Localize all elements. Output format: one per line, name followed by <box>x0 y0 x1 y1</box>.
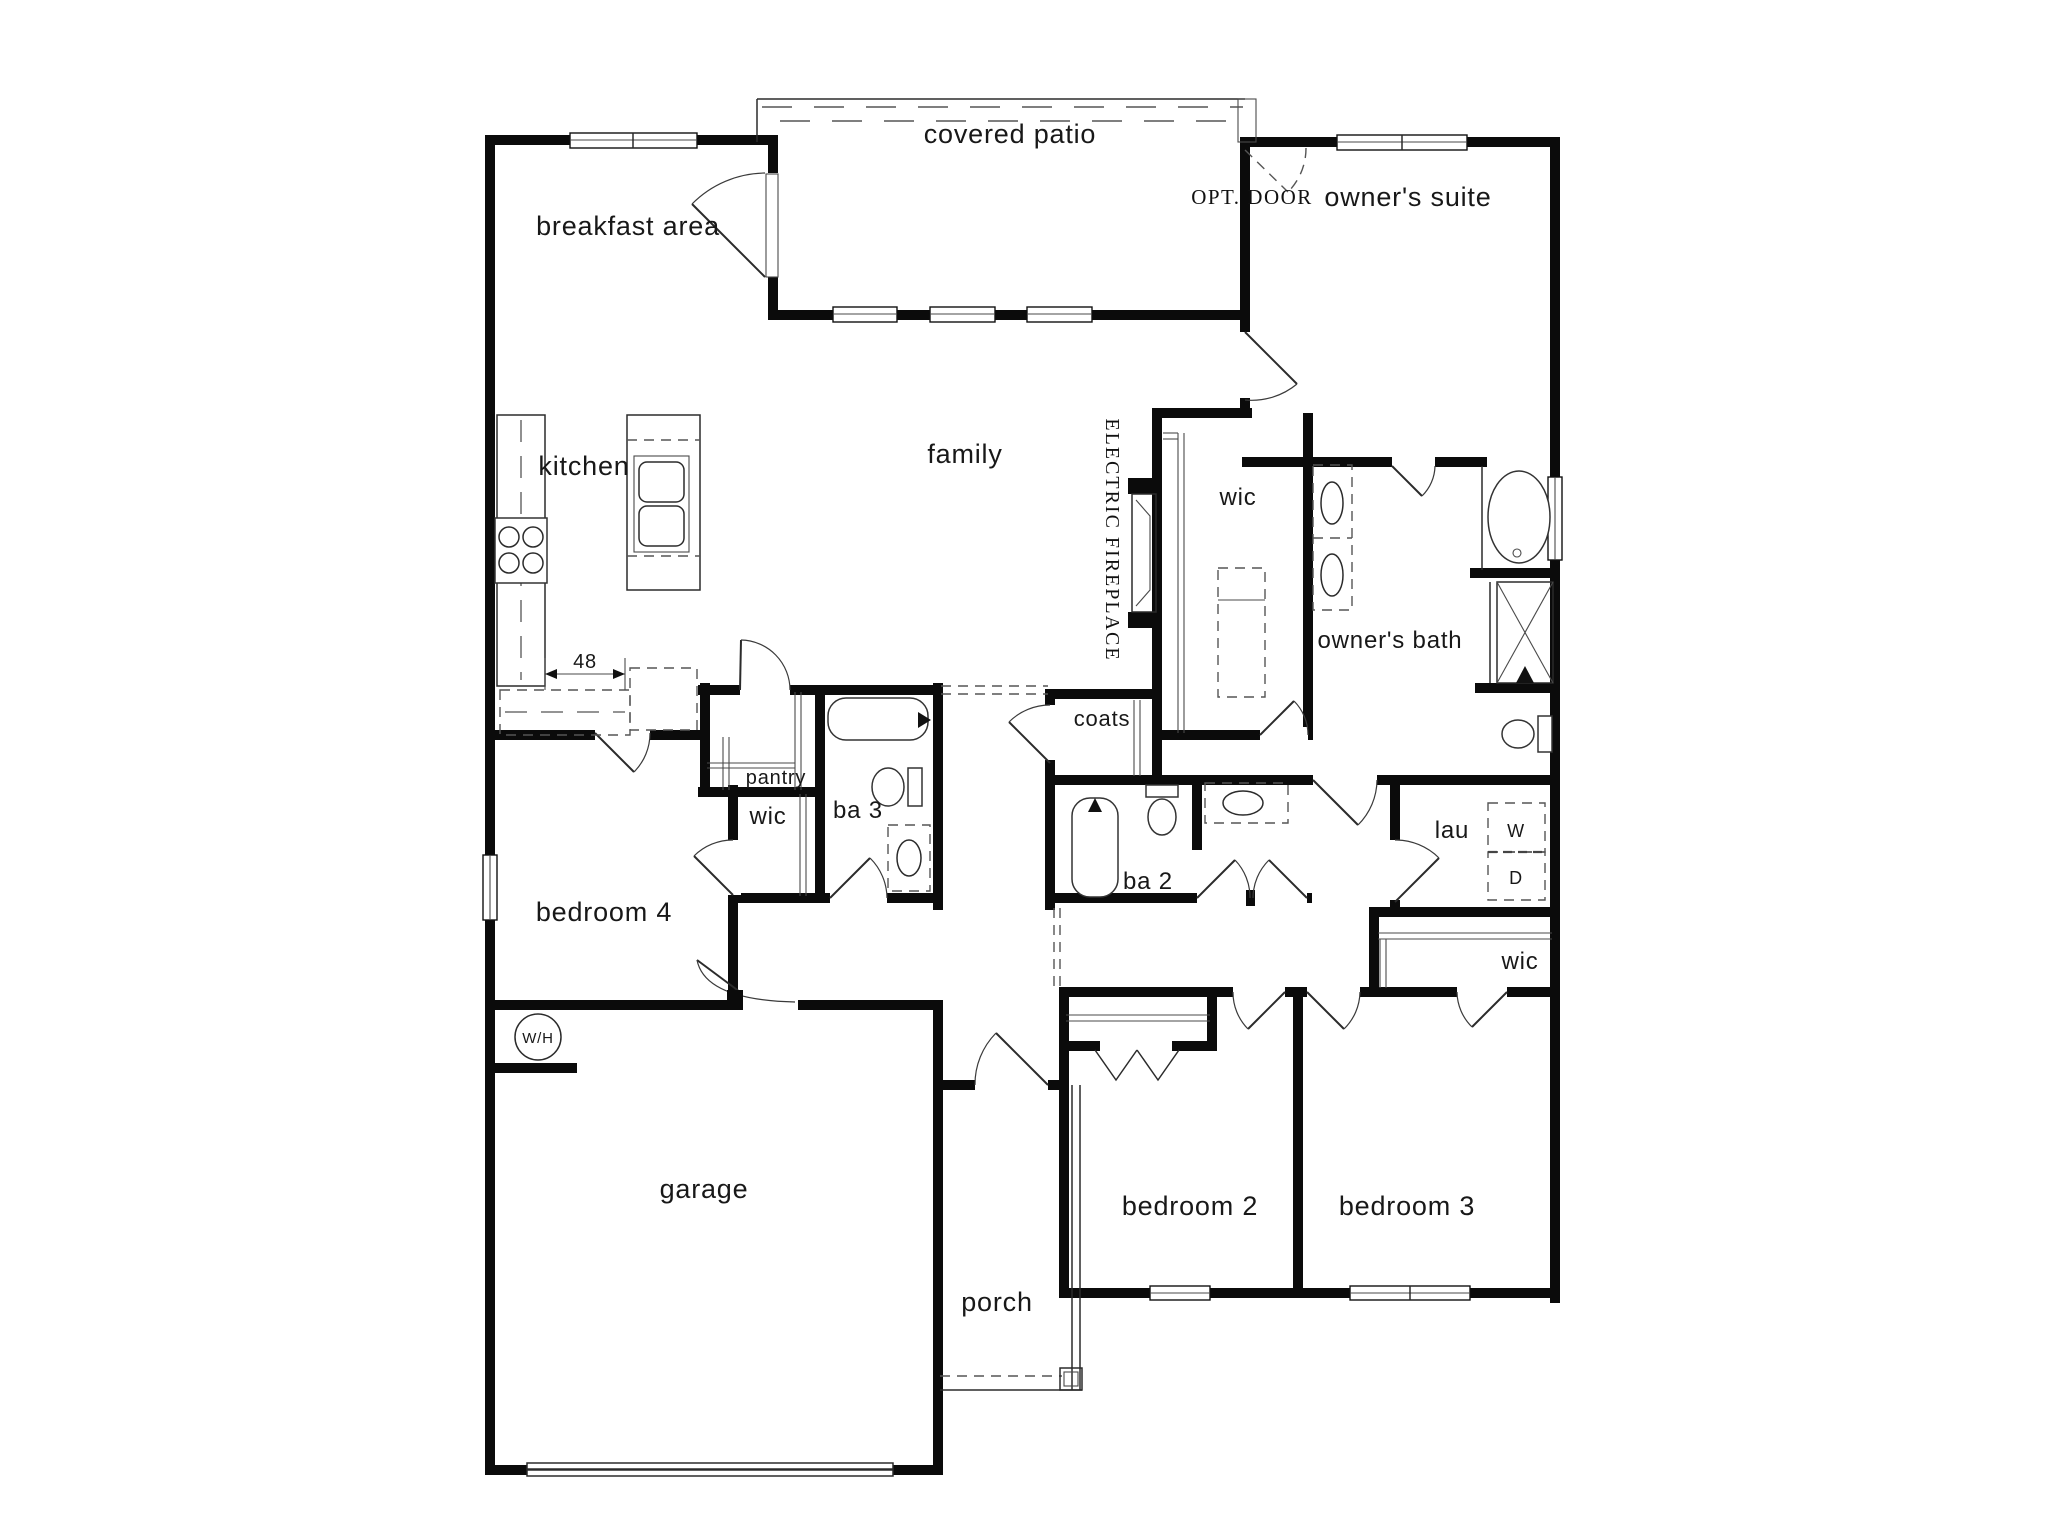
bifold-doors <box>1095 1050 1179 1080</box>
owners-toilet <box>1502 716 1552 752</box>
room-label-covered-patio: covered patio <box>924 119 1097 149</box>
room-label-owners-bath: owner's bath <box>1318 627 1463 654</box>
ba2-toilet <box>1146 785 1178 835</box>
room-label-ba3: ba 3 <box>833 797 883 824</box>
floor-plan-canvas: breakfast area covered patio OPT. DOOR o… <box>0 0 2048 1536</box>
bedroom3-window <box>1350 1286 1470 1300</box>
room-label-coats: coats <box>1074 706 1131 731</box>
room-label-bedroom2: bedroom 2 <box>1122 1191 1258 1221</box>
room-label-laundry: lau <box>1435 817 1469 844</box>
room-label-kitchen: kitchen <box>538 451 629 481</box>
room-label-owners-suite: owner's suite <box>1324 182 1491 212</box>
annotation-island-clearance: 48 <box>573 651 597 673</box>
room-label-family: family <box>927 439 1002 469</box>
owners-vanity <box>1313 465 1352 610</box>
room-label-porch: porch <box>961 1287 1033 1317</box>
owners-tub <box>1482 466 1550 570</box>
refrigerator <box>630 668 697 730</box>
room-label-breakfast-area: breakfast area <box>536 211 720 241</box>
annotation-opt-door: OPT. DOOR <box>1191 185 1313 209</box>
room-label-ba2: ba 2 <box>1123 868 1173 895</box>
ba2-vanity <box>1205 783 1288 823</box>
room-label-wic-bedroom4: wic <box>748 803 786 830</box>
owners-suite-door <box>1392 466 1435 496</box>
bedroom4-window <box>483 855 497 920</box>
windows <box>483 133 1562 1300</box>
kitchen-island <box>627 415 700 590</box>
floor-plan-page: breakfast area covered patio OPT. DOOR o… <box>0 0 2048 1536</box>
bedroom2-window <box>1150 1286 1210 1300</box>
ba3-vanity <box>888 825 930 891</box>
room-label-garage: garage <box>660 1174 749 1204</box>
sink-basin <box>639 462 684 502</box>
annotation-washer: W <box>1507 821 1525 841</box>
room-label-pantry: pantry <box>746 767 806 789</box>
labels: breakfast area covered patio OPT. DOOR o… <box>522 119 1538 1317</box>
annotation-electric-fireplace: ELECTRIC FIREPLACE <box>1101 418 1123 661</box>
family-window-2 <box>930 307 995 322</box>
closet-shelving <box>707 433 1552 1080</box>
annotation-water-heater: W/H <box>522 1030 554 1047</box>
door-gaps <box>527 173 1507 1478</box>
room-label-wic-bedroom3: wic <box>1500 948 1538 975</box>
room-label-wic-owners: wic <box>1218 484 1256 511</box>
annotation-dryer: D <box>1509 868 1523 888</box>
owners-suite-window <box>1337 135 1467 150</box>
family-window-3 <box>1027 307 1092 322</box>
breakfast-window <box>570 133 697 148</box>
room-label-bedroom4: bedroom 4 <box>536 897 672 927</box>
walls <box>490 140 1555 1470</box>
room-label-bedroom3: bedroom 3 <box>1339 1191 1475 1221</box>
sink-basin <box>639 506 684 546</box>
wic-bench <box>1218 568 1265 697</box>
ba3-tub <box>828 698 931 740</box>
cooktop <box>495 518 547 583</box>
ba2-tub <box>1072 798 1118 897</box>
family-window-1 <box>833 307 897 322</box>
owners-shower <box>1490 582 1553 683</box>
